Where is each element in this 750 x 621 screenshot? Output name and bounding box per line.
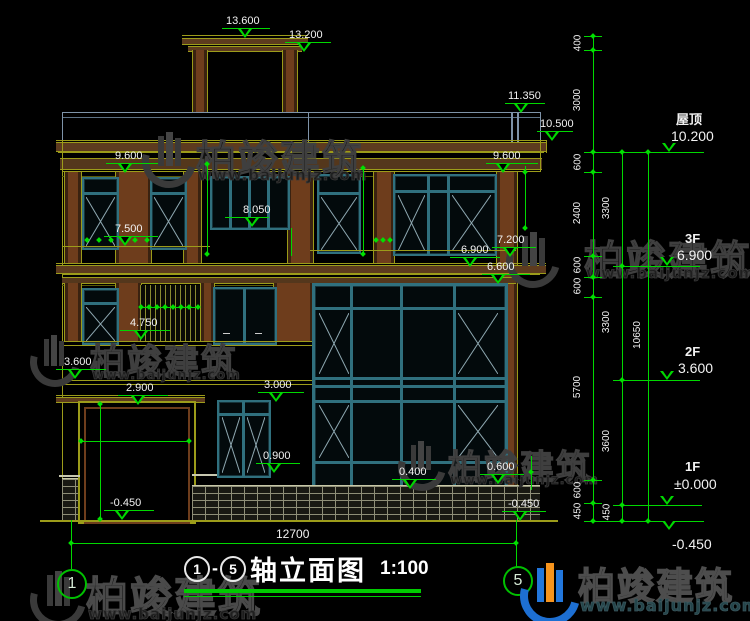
elev-label: 9.600 [115, 150, 143, 162]
elev-label: -0.450 [110, 497, 141, 509]
railing-post [517, 112, 519, 143]
floor-label-roof: 屋顶 [676, 109, 702, 128]
penthouse-column-left [192, 50, 208, 113]
title-axis-start-bubble: 1 [184, 556, 210, 582]
sill-line-3f-left [62, 246, 210, 247]
dim-text: 600 [573, 278, 583, 295]
elev-label: 8.050 [243, 204, 271, 216]
watermark-logo [142, 128, 192, 182]
window-3f-mid [317, 174, 361, 254]
railing-post [62, 112, 63, 143]
elev-marker-3000: 3.000 [264, 379, 292, 391]
cad-elevation-canvas: 13.600 13.200 11.350 10.500 9.600 9.600 … [0, 0, 750, 621]
company-logo [520, 558, 576, 618]
elev-label: 11.350 [508, 90, 541, 102]
title-axis-start: 1 [193, 561, 201, 577]
wall-right-edge-upper [540, 140, 541, 172]
floor-label-3f: 3F [685, 231, 700, 246]
railing-post [511, 112, 513, 143]
wall-left-edge [62, 140, 63, 520]
title-axis-end: 5 [229, 561, 237, 577]
floor-label-2f: 2F [685, 344, 700, 359]
elev-label: 6.600 [487, 261, 515, 273]
dim-chain-b [622, 152, 623, 521]
mini-dim [363, 168, 364, 255]
dim-tick [619, 502, 625, 508]
elev-marker-9600-right: 9.600 [493, 150, 521, 162]
title-dash: - [212, 558, 218, 579]
elev-marker-13600: 13.600 [226, 15, 260, 27]
elev-marker-0600: 0.600 [487, 461, 515, 473]
dim-text: 450 [602, 504, 612, 521]
level-triangle [660, 496, 674, 505]
louver-panel-2f [140, 285, 200, 341]
floor-elev-1f: ±0.000 [674, 476, 717, 492]
dim-tick [513, 540, 519, 546]
elev-marker-9600-left: 9.600 [115, 150, 143, 162]
pier-3f [115, 172, 152, 264]
elev-marker-0400: 0.400 [399, 466, 427, 478]
ground-line [40, 520, 558, 522]
level-triangle [660, 371, 674, 380]
dim-tick [204, 251, 210, 257]
level-line-3f [636, 266, 700, 267]
dim-chain-total [648, 152, 649, 521]
level-triangle [662, 521, 676, 530]
elev-label: 0.600 [487, 461, 515, 473]
dim-tick [619, 149, 625, 155]
elev-label: 0.400 [399, 466, 427, 478]
overall-width-text: 12700 [276, 528, 309, 540]
company-url: www.baijunjz.com [580, 596, 750, 615]
window-1f [217, 400, 271, 478]
watermark-url: www.baijunjz.com [88, 605, 257, 621]
dim-tick [619, 518, 625, 524]
elev-label: -0.450 [508, 498, 539, 510]
elev-label: 9.600 [493, 150, 521, 162]
mini-dim [207, 164, 208, 255]
elev-marker-7500: 7.500 [115, 223, 143, 235]
dim-text: 3300 [602, 197, 612, 219]
elev-label: 7.200 [497, 234, 525, 246]
pier-cap-mid [192, 474, 217, 476]
brick-wainscot [192, 485, 540, 520]
brick-pier-left [62, 478, 78, 520]
title-text: 轴立面图 [250, 549, 366, 588]
floor-elev-3f: 6.900 [677, 247, 712, 263]
slab-3f-bottom [62, 274, 540, 275]
level-triangle [662, 143, 676, 152]
elev-label: 7.500 [115, 223, 143, 235]
floor-elev-2f: 3.600 [678, 360, 713, 376]
elev-marker-6900: 6.900 [461, 244, 489, 256]
level-line-roof [628, 152, 704, 153]
drawing-title: 1 - 5 轴立面图 1:100 [184, 549, 429, 588]
dim-text: 2400 [573, 202, 583, 224]
level-triangle [660, 257, 674, 266]
eave-end-right [546, 140, 547, 153]
dim-tick [590, 294, 596, 300]
roof-railing-top [62, 112, 541, 113]
dim-text: 400 [573, 35, 583, 52]
dim-stub [584, 521, 704, 522]
dim-text: 3000 [573, 89, 583, 111]
title-underline-thin [184, 596, 421, 597]
elev-label: 4.750 [130, 317, 158, 329]
title-axis-end-bubble: 5 [220, 556, 246, 582]
dim-text: 600 [573, 257, 583, 274]
dim-text: 450 [573, 503, 583, 520]
floor-elev-ground: -0.450 [672, 536, 712, 552]
elev-marker-11350: 11.350 [508, 90, 541, 102]
elev-marker-2900: 2.900 [126, 382, 154, 394]
mini-dim [291, 228, 292, 256]
elev-marker-0900: 0.900 [263, 450, 291, 462]
elev-label: 3.600 [64, 356, 92, 368]
elev-label: 0.900 [263, 450, 291, 462]
elev-marker-6600: 6.600 [487, 261, 515, 273]
dim-tick [590, 33, 596, 39]
elev-marker-8050: 8.050 [243, 204, 271, 216]
elev-marker-3600-left: 3.600 [64, 356, 92, 368]
elev-label: 6.900 [461, 244, 489, 256]
garage-dim-hline [81, 441, 189, 442]
floor-elev-roof: 10.200 [671, 128, 714, 144]
elev-marker-7200: 7.200 [497, 234, 525, 246]
dim-text-total-height: 10650 [633, 321, 643, 349]
dim-tick [645, 518, 651, 524]
dim-tick [590, 47, 596, 53]
elev-label: 13.200 [289, 29, 323, 41]
dim-tick [360, 251, 366, 257]
level-line-1f [636, 505, 702, 506]
elev-label: 2.900 [126, 382, 154, 394]
elev-label: 10.500 [540, 118, 574, 130]
watermark-url: www.baijunjz.com [92, 368, 241, 383]
elev-marker-4750: 4.750 [130, 317, 158, 329]
overall-dim-line [71, 543, 516, 544]
level-line-2f [636, 380, 700, 381]
axis-bubble-1: 1 [57, 569, 87, 599]
dim-text: 3600 [602, 430, 612, 452]
dim-text: 600 [573, 482, 583, 499]
axis-number: 1 [68, 575, 77, 593]
pier-cap-left [59, 475, 80, 477]
pier-3f [64, 172, 82, 264]
title-underline-thick [184, 589, 421, 593]
floor-label-1f: 1F [685, 459, 700, 474]
title-scale: 1:100 [380, 558, 429, 580]
elev-marker-m0450-right: -0.450 [508, 498, 539, 510]
dim-tick [590, 149, 596, 155]
dim-text: 5700 [573, 376, 583, 398]
dim-tick [68, 540, 74, 546]
dim-text: 600 [573, 154, 583, 171]
elev-marker-m0450-left: -0.450 [110, 497, 141, 509]
elev-marker-10500: 10.500 [540, 118, 574, 130]
elev-label: 3.000 [264, 379, 292, 391]
dim-text: 3300 [602, 311, 612, 333]
roof-railing-bottom [62, 117, 541, 118]
dim-tick [590, 169, 596, 175]
garage-dim-vline [100, 404, 101, 519]
pier-2f [273, 283, 314, 341]
dim-tick [590, 500, 596, 506]
elev-marker-13200: 13.200 [289, 29, 323, 41]
watermark-url: www.baijunjz.com [198, 166, 367, 184]
dim-tick [590, 518, 596, 524]
elev-label: 13.600 [226, 15, 260, 27]
penthouse-column-right [282, 50, 298, 113]
dim-tick [619, 377, 625, 383]
mini-dim [525, 166, 526, 230]
